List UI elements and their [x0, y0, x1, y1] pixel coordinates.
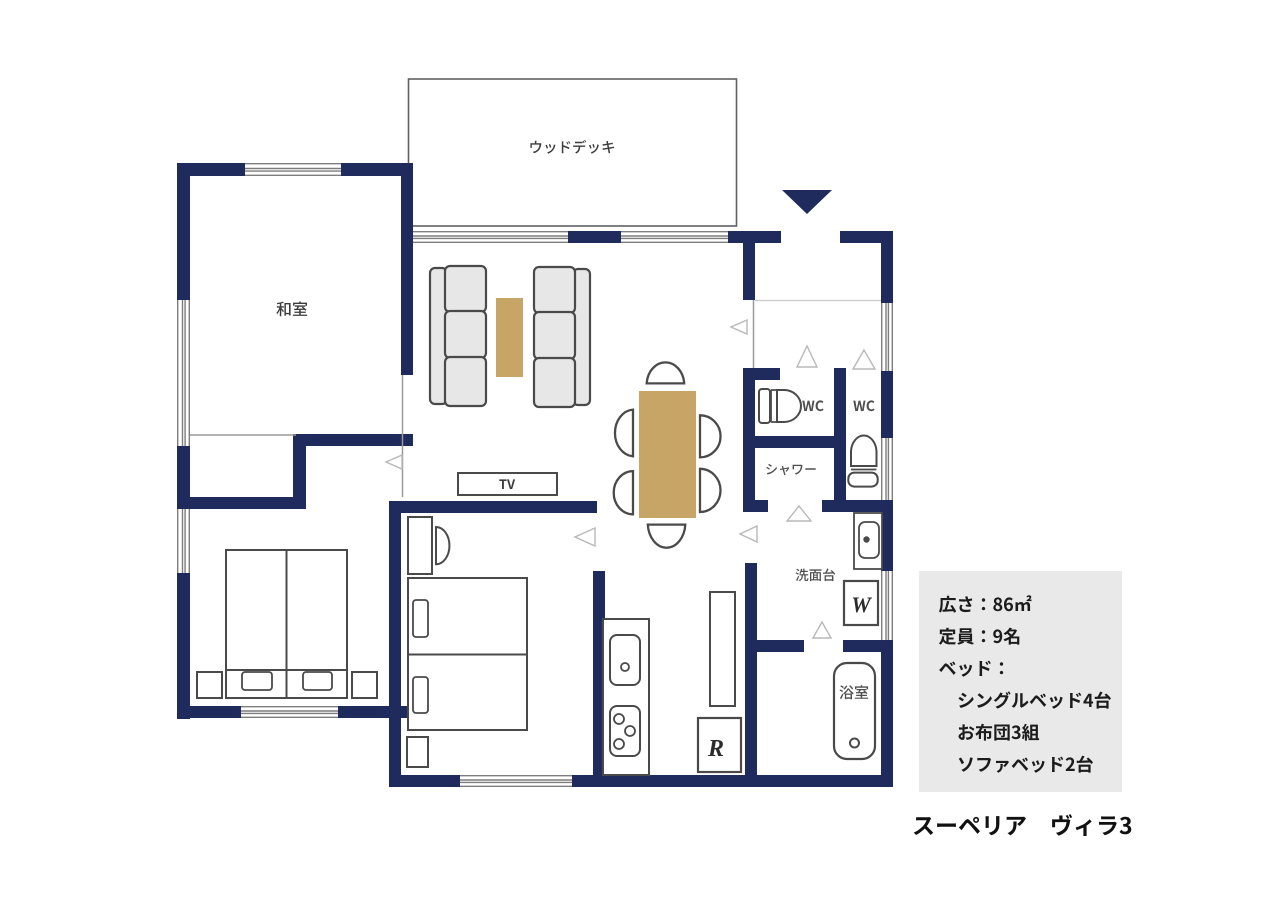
svg-text:R: R — [707, 736, 724, 762]
svg-text:W: W — [851, 592, 872, 617]
